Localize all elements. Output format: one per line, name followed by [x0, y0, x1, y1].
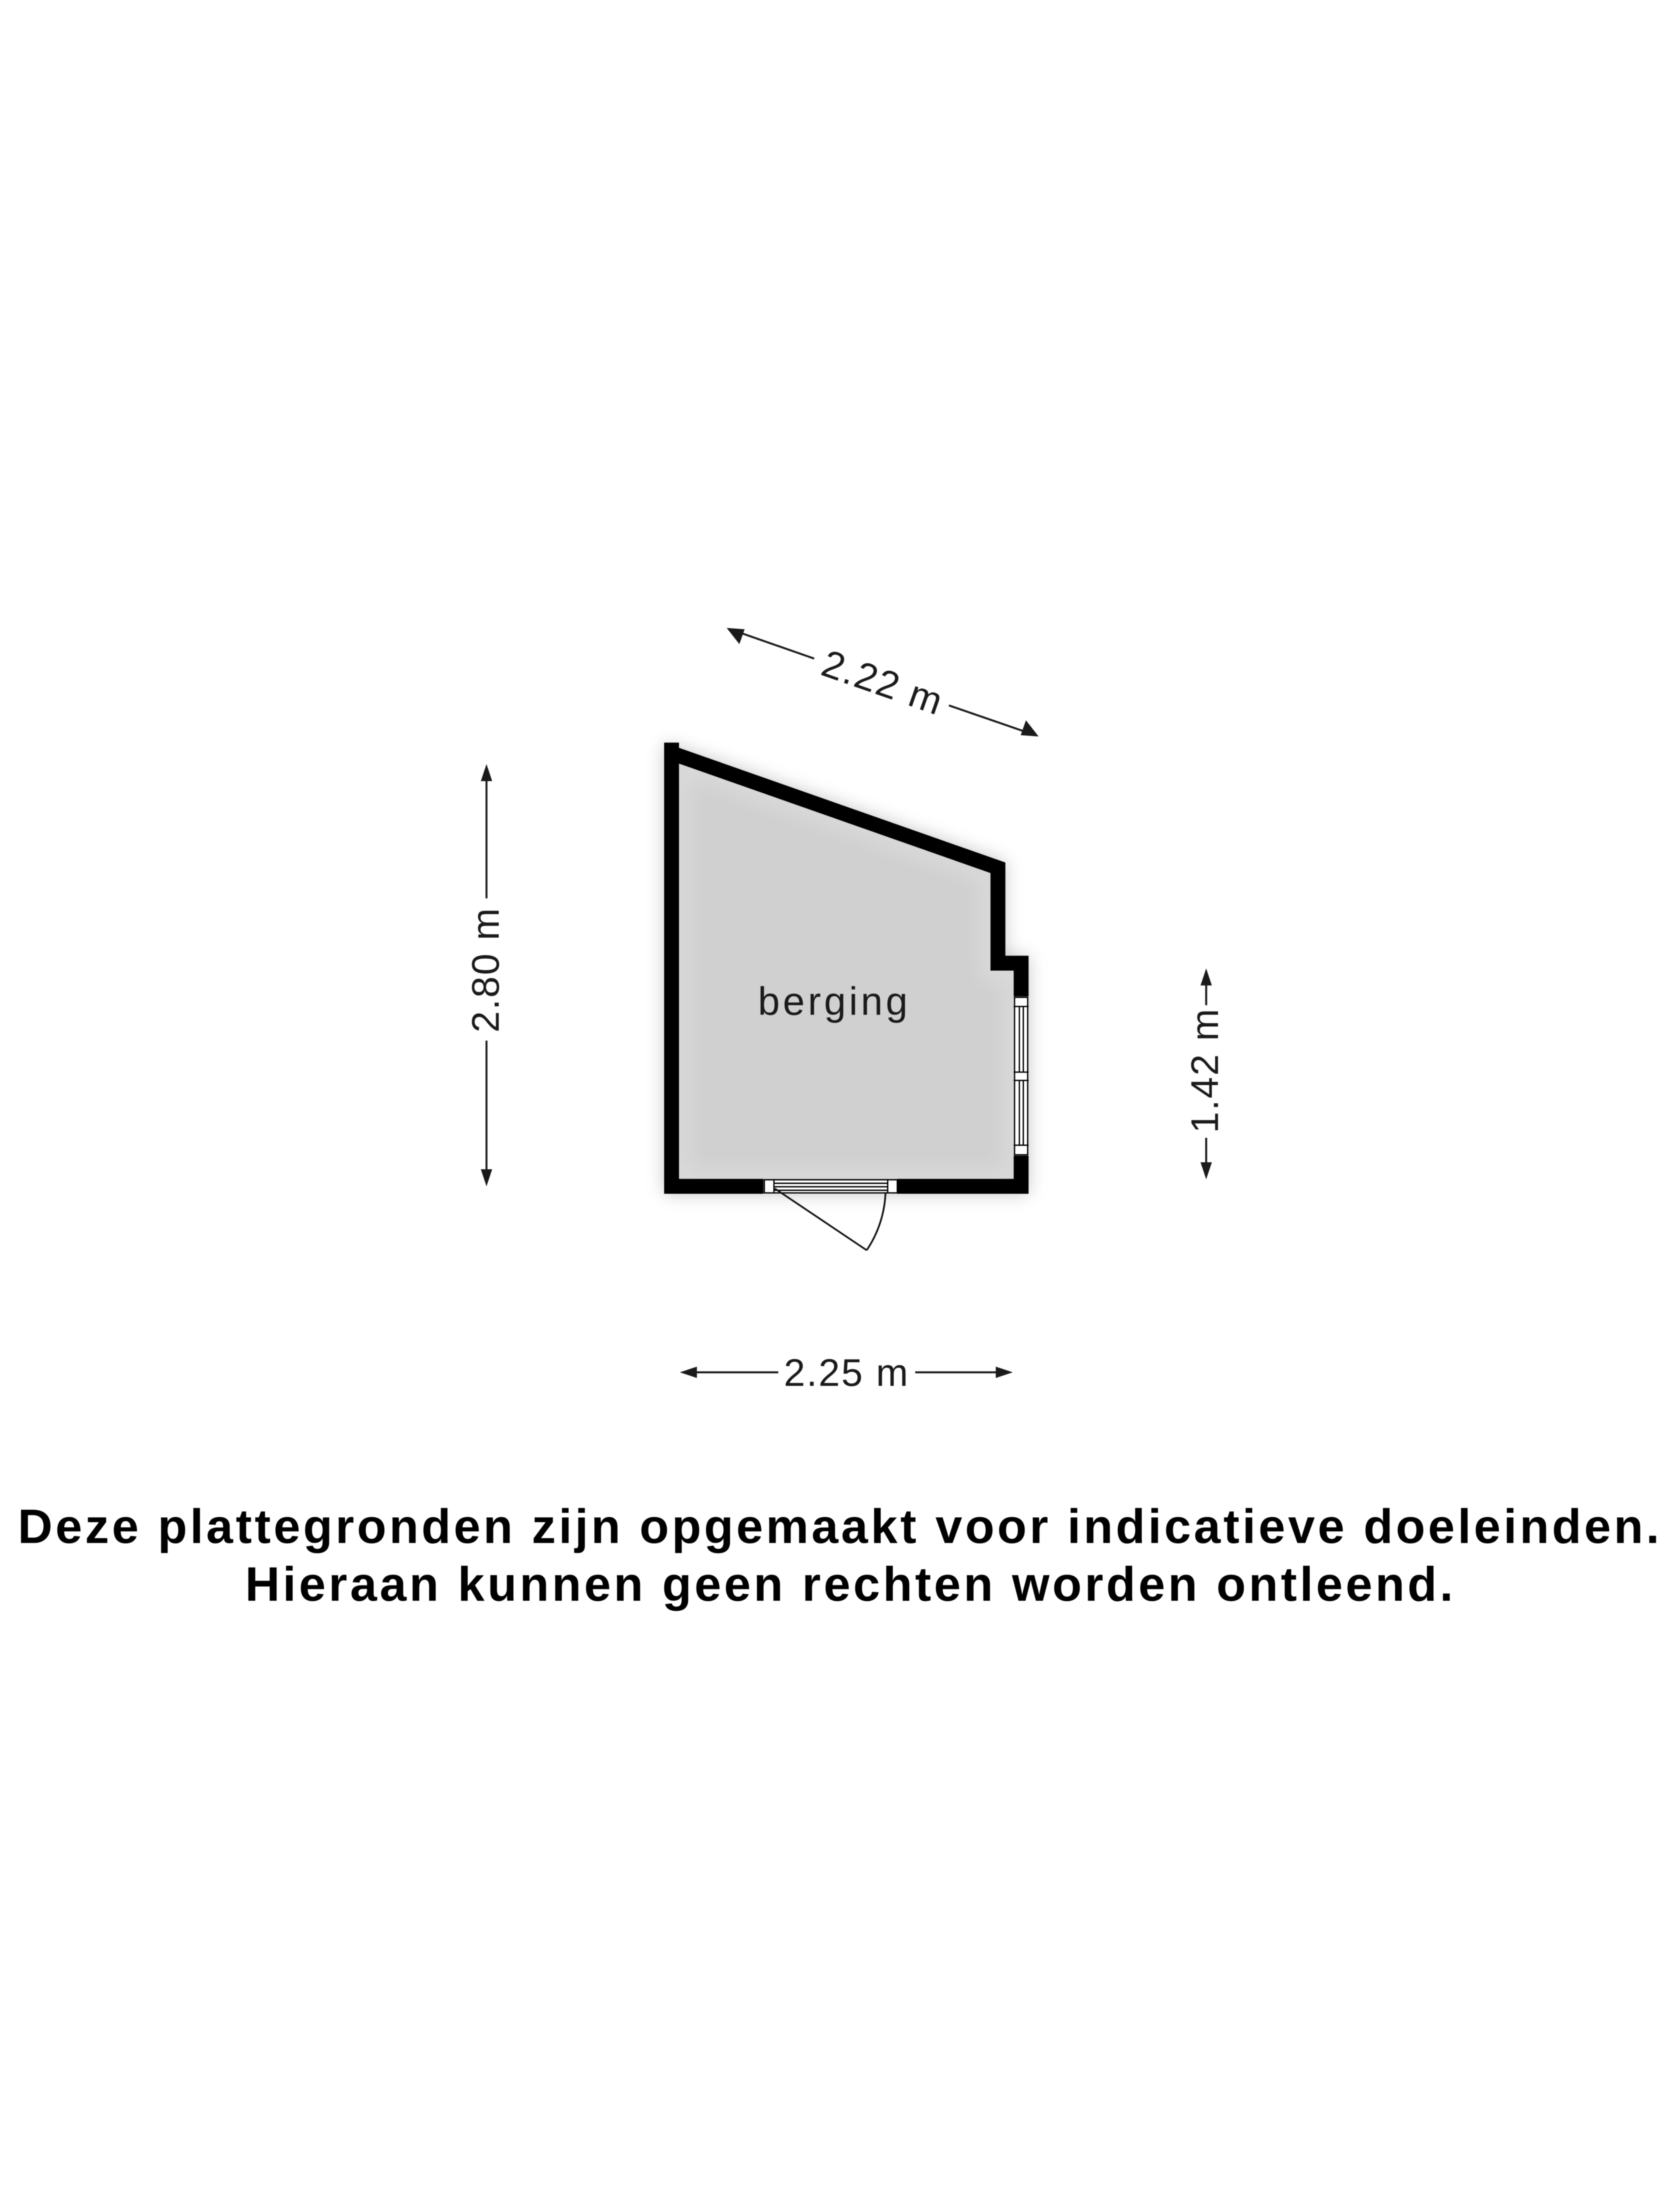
svg-text:Hieraan kunnen geen rechten wo: Hieraan kunnen geen rechten worden ontle… — [245, 1557, 1456, 1611]
svg-text:1.42 m: 1.42 m — [1183, 1007, 1226, 1133]
svg-text:2.25 m: 2.25 m — [784, 1351, 909, 1394]
svg-text:berging: berging — [758, 980, 910, 1024]
svg-text:Deze plattegronden zijn opgema: Deze plattegronden zijn opgemaakt voor i… — [18, 1500, 1662, 1553]
svg-text:2.80 m: 2.80 m — [464, 907, 507, 1032]
